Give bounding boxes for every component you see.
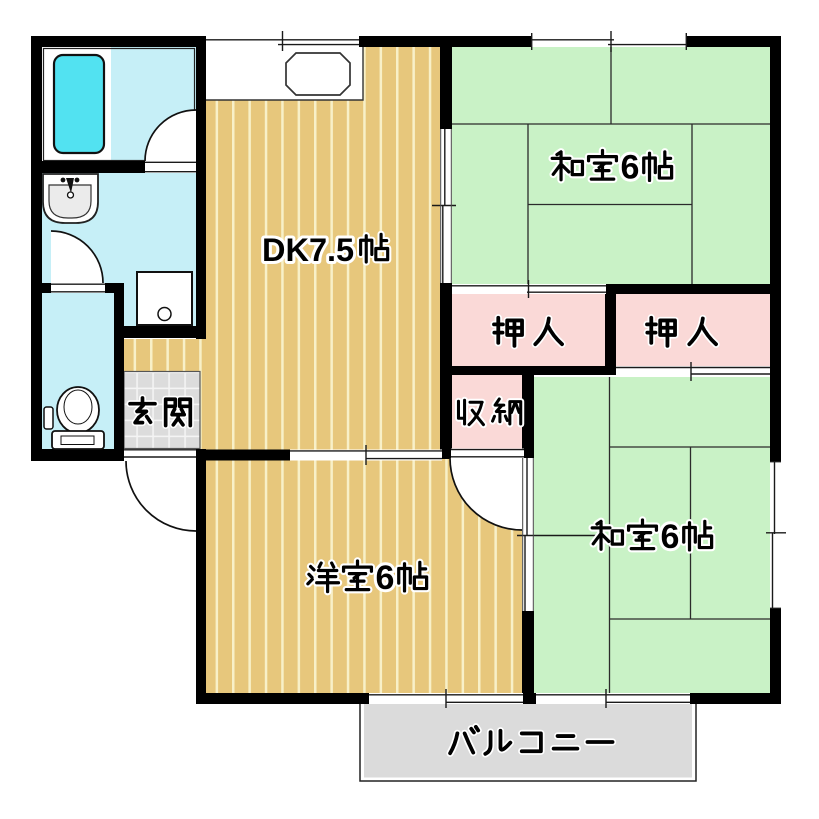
svg-text:6: 6: [376, 559, 395, 597]
svg-text:6: 6: [621, 149, 640, 187]
svg-text:6: 6: [661, 518, 680, 556]
svg-text:DK7.5: DK7.5: [262, 232, 354, 268]
